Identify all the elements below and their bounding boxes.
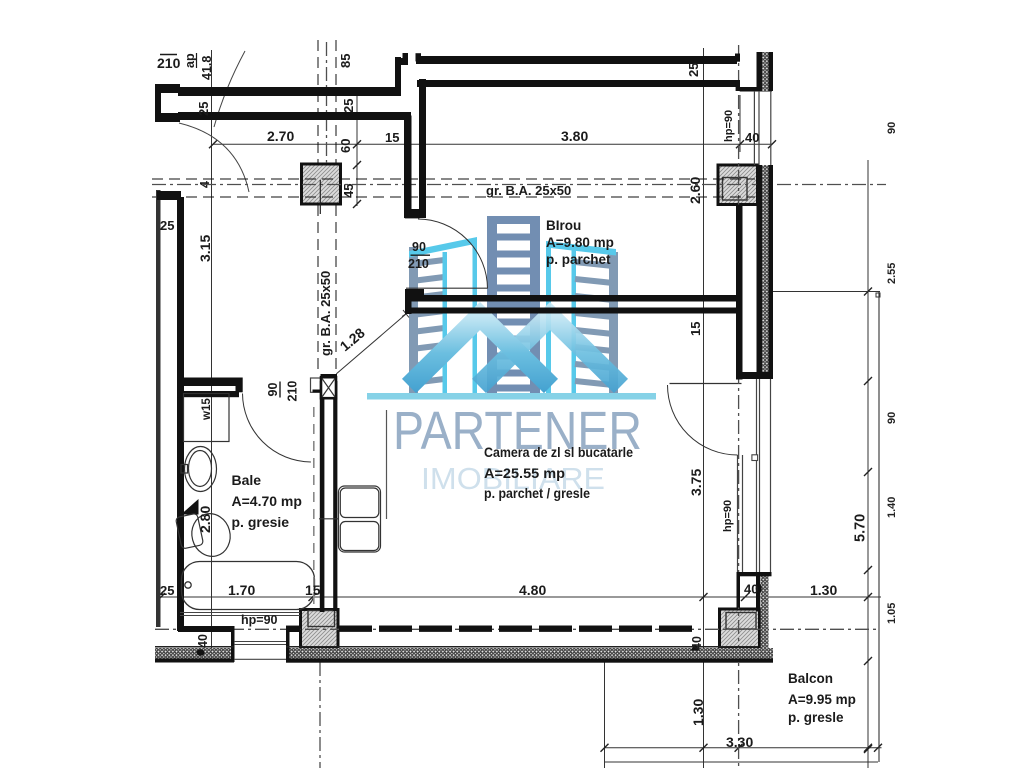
svg-text:hp=90: hp=90	[241, 613, 278, 627]
svg-text:3.80: 3.80	[561, 128, 588, 144]
svg-text:Balcon: Balcon	[788, 671, 833, 686]
svg-text:25: 25	[196, 102, 211, 116]
svg-text:25: 25	[341, 99, 356, 113]
svg-text:210: 210	[157, 55, 181, 71]
svg-text:3.15: 3.15	[197, 235, 213, 262]
svg-text:1.70: 1.70	[228, 582, 255, 598]
svg-text:40: 40	[196, 634, 210, 648]
svg-text:ap: ap	[183, 53, 197, 68]
svg-text:w15: w15	[201, 398, 213, 421]
svg-text:15: 15	[385, 130, 399, 145]
svg-text:gr. B.A. 25x50: gr. B.A. 25x50	[486, 183, 571, 198]
svg-text:p. parchet / gresle: p. parchet / gresle	[484, 485, 590, 501]
svg-text:90: 90	[886, 122, 898, 134]
svg-text:90: 90	[266, 383, 280, 397]
svg-text:3.30: 3.30	[726, 734, 753, 750]
svg-text:85: 85	[338, 54, 353, 68]
svg-text:hp=90: hp=90	[723, 110, 735, 142]
svg-text:210: 210	[286, 381, 300, 402]
svg-text:25: 25	[160, 218, 174, 233]
svg-text:p. parchet: p. parchet	[546, 252, 611, 267]
svg-text:5.70: 5.70	[853, 514, 869, 542]
svg-text:BIrou: BIrou	[546, 218, 581, 233]
svg-text:210: 210	[408, 257, 429, 271]
svg-text:45: 45	[341, 184, 356, 198]
svg-text:hp=90: hp=90	[722, 500, 734, 532]
svg-text:Bale: Bale	[232, 472, 262, 488]
svg-text:1.40: 1.40	[886, 497, 898, 518]
svg-text:40: 40	[745, 130, 759, 145]
svg-text:3.75: 3.75	[688, 469, 704, 496]
svg-text:1.30: 1.30	[690, 699, 706, 726]
svg-text:2.70: 2.70	[267, 128, 294, 144]
svg-text:2.80: 2.80	[197, 506, 213, 533]
svg-text:15: 15	[305, 582, 321, 598]
svg-text:60: 60	[338, 139, 353, 153]
svg-text:15: 15	[688, 322, 703, 336]
svg-text:p. gresle: p. gresle	[788, 710, 844, 725]
svg-text:Camera de zl sl bucatarle: Camera de zl sl bucatarle	[484, 444, 633, 460]
svg-text:90: 90	[412, 240, 426, 254]
svg-text:90: 90	[886, 412, 898, 424]
svg-text:A=4.70 mp: A=4.70 mp	[232, 493, 302, 509]
svg-text:40: 40	[690, 636, 704, 650]
svg-text:4.80: 4.80	[519, 582, 546, 598]
svg-text:gr. B.A. 25x50: gr. B.A. 25x50	[318, 271, 333, 356]
svg-text:2.55: 2.55	[886, 263, 898, 284]
svg-text:p. gresie: p. gresie	[232, 514, 290, 530]
svg-text:1.30: 1.30	[810, 582, 837, 598]
svg-text:A=9.80 mp: A=9.80 mp	[546, 235, 614, 250]
svg-text:A=9.95 mp: A=9.95 mp	[788, 692, 856, 707]
svg-text:41.8: 41.8	[200, 56, 214, 80]
svg-text:1.05: 1.05	[886, 603, 898, 624]
svg-text:25: 25	[160, 583, 174, 598]
svg-text:40: 40	[744, 582, 758, 597]
svg-text:2.60: 2.60	[687, 177, 703, 204]
svg-text:25: 25	[686, 63, 701, 77]
svg-text:A=25.55 mp: A=25.55 mp	[484, 465, 565, 481]
